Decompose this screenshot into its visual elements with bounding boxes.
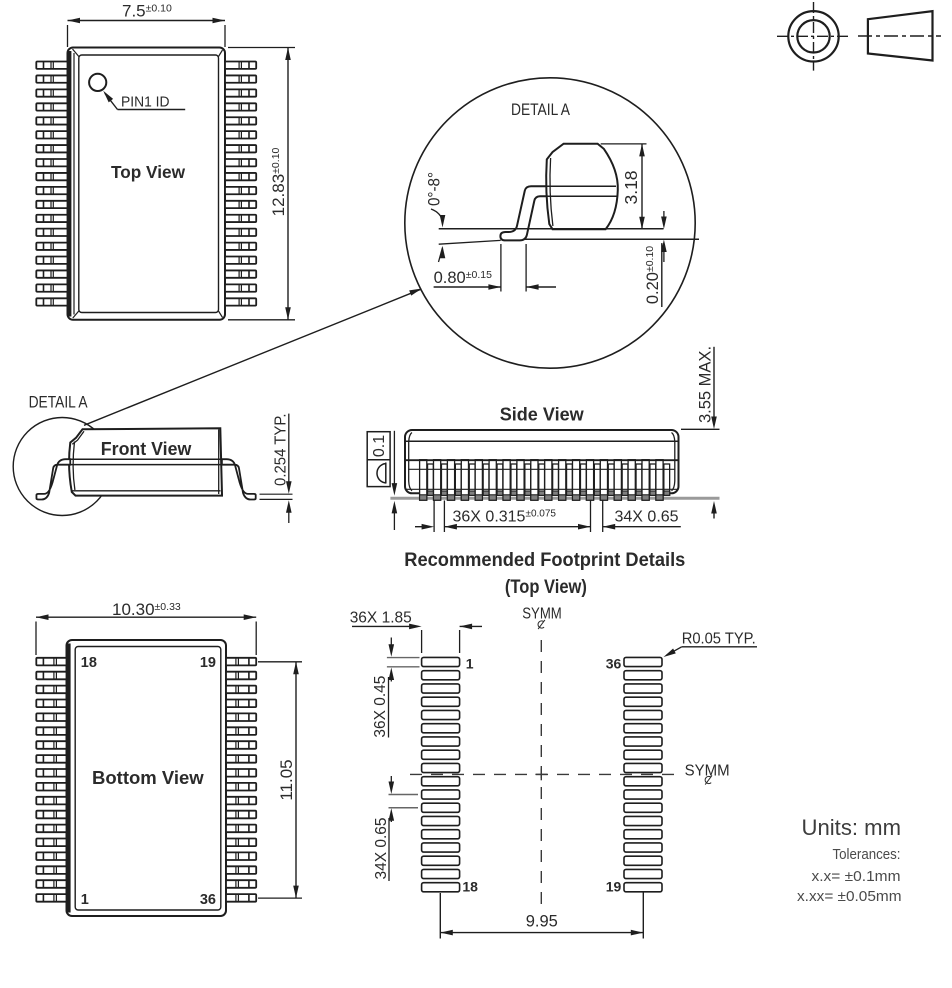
svg-text:x.x= ±0.1mm: x.x= ±0.1mm xyxy=(812,868,901,885)
svg-text:Recommended Footprint Details: Recommended Footprint Details xyxy=(404,549,685,571)
svg-text:19: 19 xyxy=(606,878,622,894)
svg-text:Bottom View: Bottom View xyxy=(92,767,204,788)
svg-text:18: 18 xyxy=(81,655,97,671)
svg-text:Units: mm: Units: mm xyxy=(802,815,902,840)
svg-text:0.254 TYP.: 0.254 TYP. xyxy=(273,413,290,486)
svg-text:Front View: Front View xyxy=(101,438,192,459)
svg-text:3.18: 3.18 xyxy=(621,170,641,204)
svg-text:DETAIL A: DETAIL A xyxy=(29,393,89,412)
svg-text:18: 18 xyxy=(462,879,478,895)
svg-text:1: 1 xyxy=(81,892,89,908)
svg-text:11.05: 11.05 xyxy=(277,759,296,800)
svg-text:19: 19 xyxy=(200,655,216,671)
svg-text:PIN1 ID: PIN1 ID xyxy=(121,94,170,111)
svg-text:9.95: 9.95 xyxy=(526,913,558,931)
svg-text:SYMM: SYMM xyxy=(522,606,562,623)
svg-text:36X 1.85: 36X 1.85 xyxy=(350,610,412,627)
svg-text:34X 0.65: 34X 0.65 xyxy=(373,817,390,879)
svg-text:0.1: 0.1 xyxy=(371,435,388,457)
svg-text:DETAIL A: DETAIL A xyxy=(511,100,571,119)
svg-text:x.xx= ±0.05mm: x.xx= ±0.05mm xyxy=(797,888,902,905)
svg-text:Tolerances:: Tolerances: xyxy=(833,846,901,863)
svg-text:36X 0.45: 36X 0.45 xyxy=(372,676,389,738)
svg-text:(Top View): (Top View) xyxy=(505,576,587,598)
svg-text:Side View: Side View xyxy=(500,404,585,425)
svg-text:R0.05 TYP.: R0.05 TYP. xyxy=(682,631,756,648)
svg-text:34X 0.65: 34X 0.65 xyxy=(615,509,679,526)
svg-text:Top View: Top View xyxy=(111,162,185,182)
svg-text:0°-8°: 0°-8° xyxy=(426,172,444,206)
svg-text:1: 1 xyxy=(466,655,474,671)
svg-text:3.55 MAX.: 3.55 MAX. xyxy=(697,346,715,423)
svg-text:36: 36 xyxy=(200,892,216,908)
svg-text:36: 36 xyxy=(606,655,622,671)
